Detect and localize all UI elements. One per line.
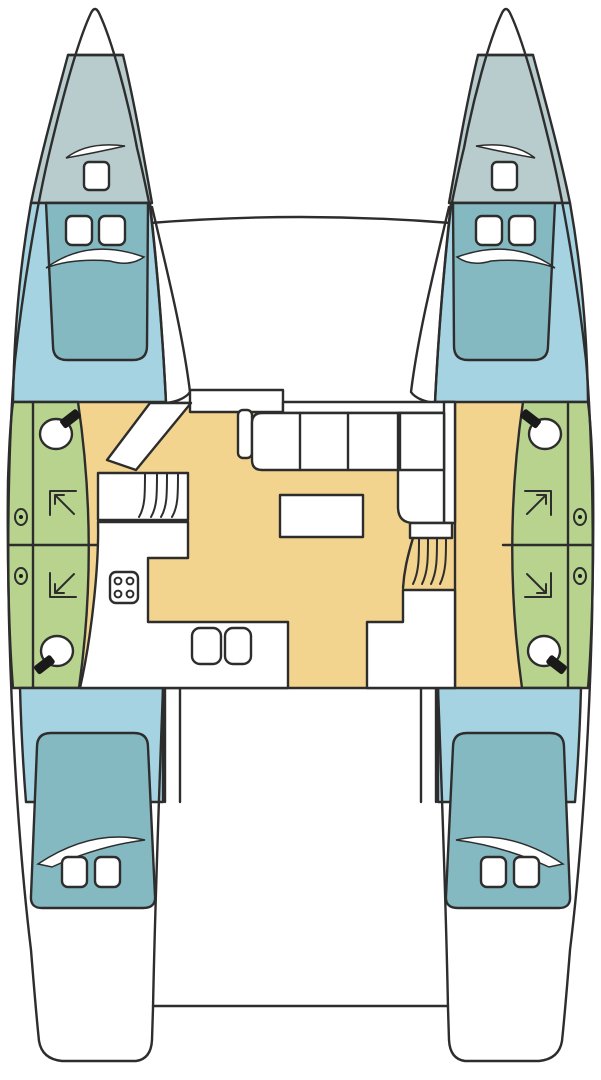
settee-end-cap xyxy=(238,410,252,458)
catamaran-deck-plan xyxy=(0,0,601,1080)
settee-side-backrest xyxy=(444,402,455,523)
starboard-stairs-step-shelf xyxy=(410,523,452,538)
mast-step xyxy=(190,390,283,412)
sink-basin xyxy=(225,628,251,664)
sink-basin xyxy=(192,628,221,664)
deck-plan-canvas xyxy=(0,0,601,1080)
salon-table xyxy=(280,495,363,537)
settee-corner-seat xyxy=(398,413,444,523)
stove xyxy=(110,572,138,603)
foredeck-beam-line xyxy=(150,217,451,223)
settee-backrest xyxy=(283,402,454,413)
